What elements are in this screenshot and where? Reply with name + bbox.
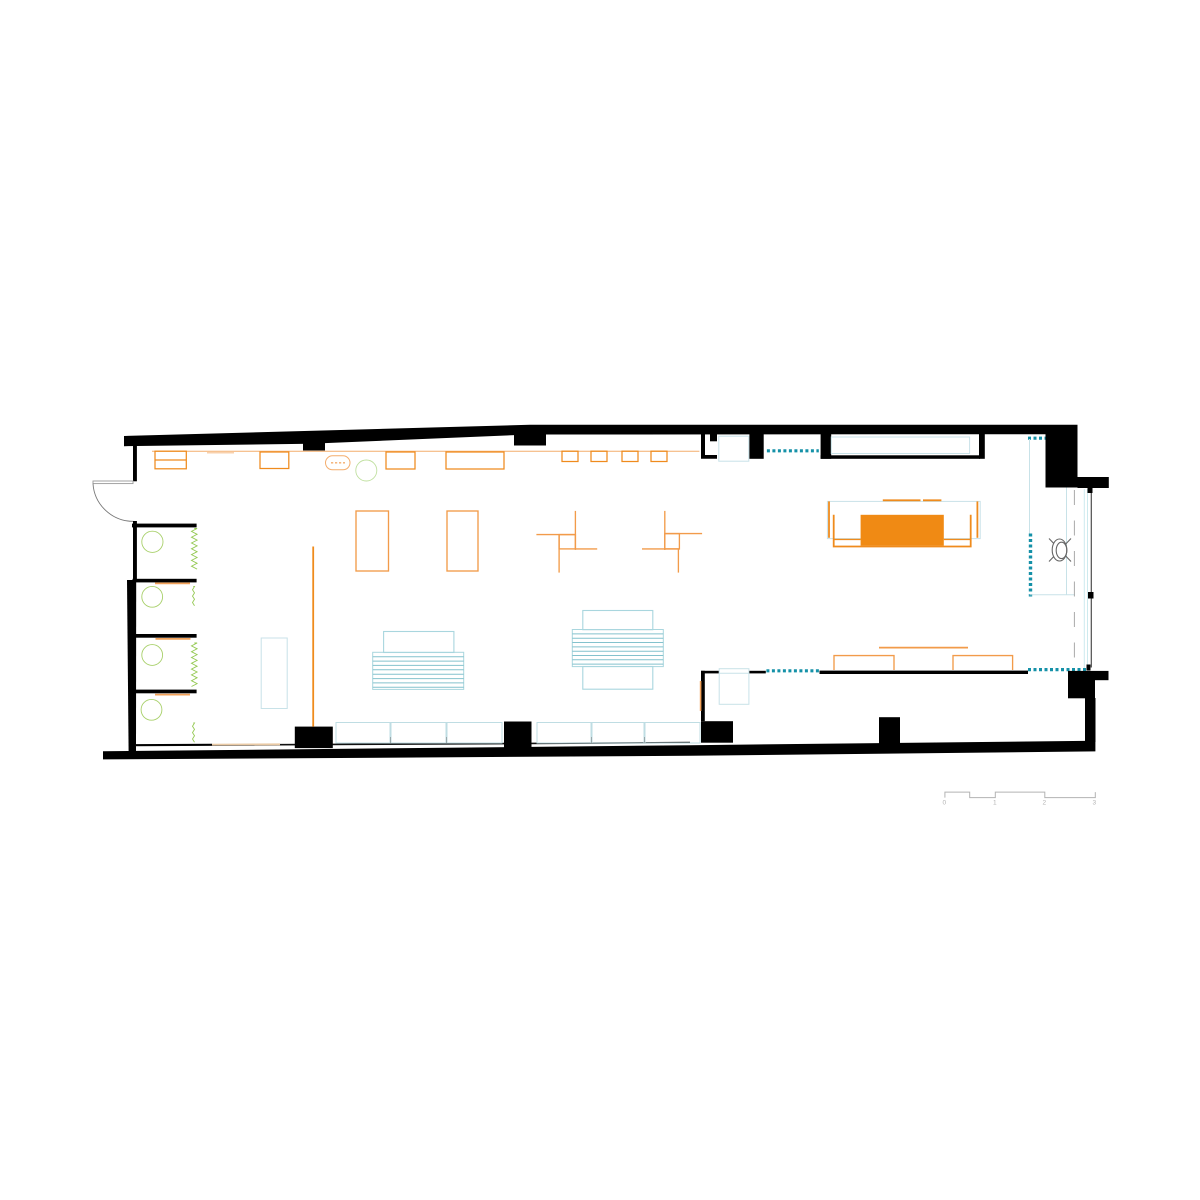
svg-text:2: 2 (1043, 800, 1047, 807)
svg-text:1: 1 (993, 800, 997, 807)
svg-text:0: 0 (943, 800, 947, 807)
svg-text:3: 3 (1093, 800, 1097, 807)
